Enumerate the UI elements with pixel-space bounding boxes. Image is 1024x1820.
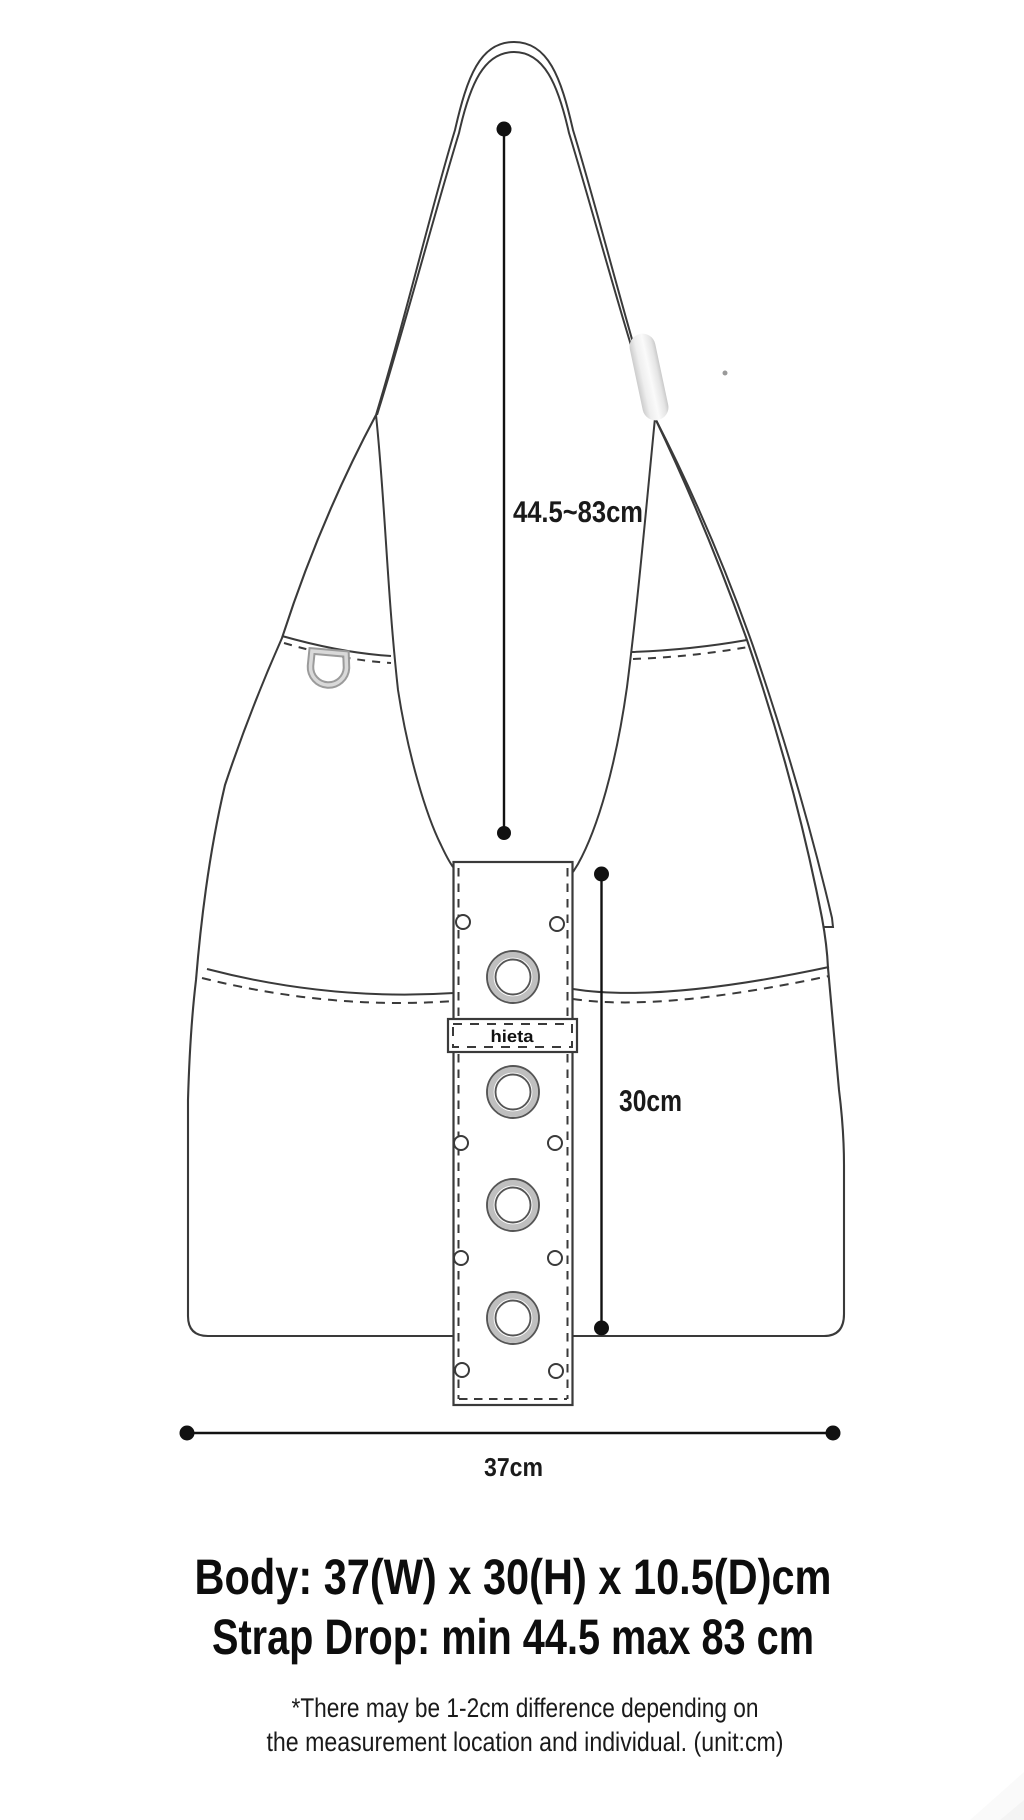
svg-text:Body: 37(W) x 30(H) x 10.5(D): Body: 37(W) x 30(H) x 10.5(D)cm: [195, 1549, 832, 1605]
svg-text:37cm: 37cm: [484, 1452, 543, 1482]
svg-text:*There may be 1-2cm difference: *There may be 1-2cm difference depending…: [292, 1693, 759, 1723]
svg-text:Strap Drop: min 44.5 max 83 cm: Strap Drop: min 44.5 max 83 cm: [212, 1609, 814, 1665]
svg-text:hieta: hieta: [491, 1027, 535, 1046]
svg-text:30cm: 30cm: [619, 1085, 682, 1118]
svg-text:the measurement location and i: the measurement location and individual.…: [267, 1727, 784, 1757]
svg-text:44.5~83cm: 44.5~83cm: [513, 496, 643, 529]
